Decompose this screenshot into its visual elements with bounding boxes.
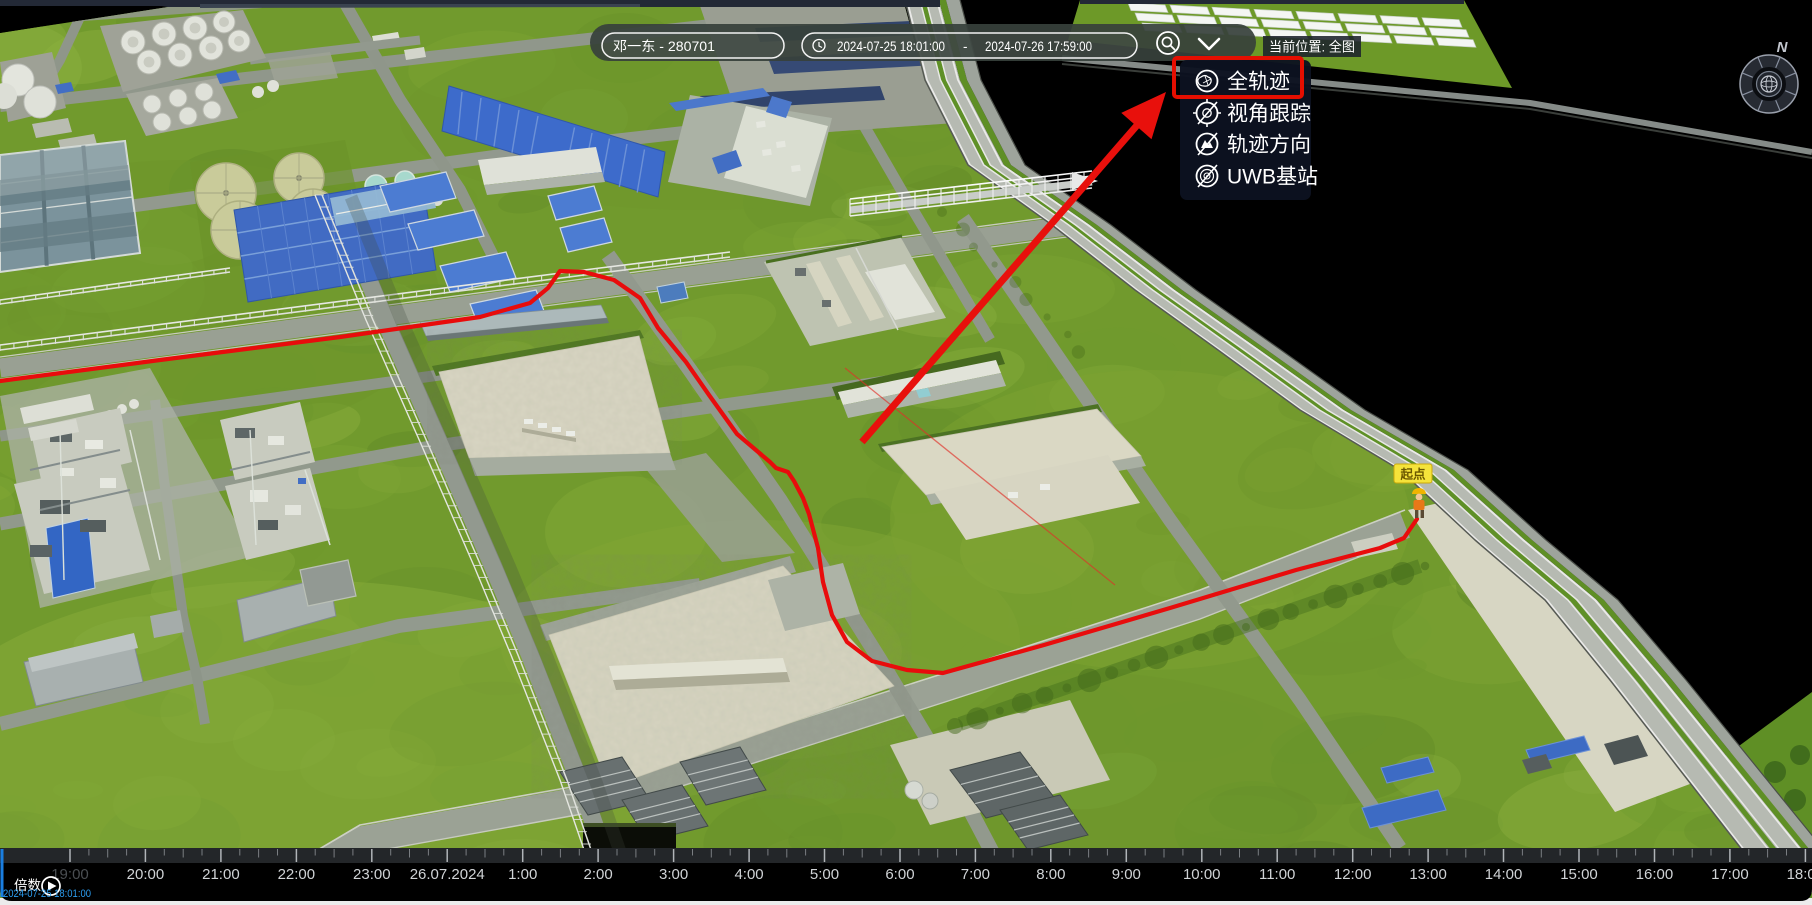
svg-text:2024-07-25 18:01:00: 2024-07-25 18:01:00 [837,39,945,54]
svg-text:11:00: 11:00 [1259,866,1295,883]
svg-text:2024-07-25 18:01:00: 2024-07-25 18:01:00 [3,888,91,900]
svg-text:17:00: 17:00 [1711,866,1749,883]
svg-text:7:00: 7:00 [961,866,990,883]
svg-text:23:00: 23:00 [353,866,391,883]
svg-text:19:00: 19:00 [51,866,89,883]
svg-text:14:00: 14:00 [1485,866,1523,883]
svg-text:3:00: 3:00 [659,866,688,883]
svg-text:-: - [963,39,968,54]
svg-text:8:00: 8:00 [1036,866,1065,883]
svg-text:6:00: 6:00 [885,866,914,883]
svg-text:16:00: 16:00 [1636,866,1674,883]
svg-text:全轨迹: 全轨迹 [1227,71,1290,94]
svg-text:起点: 起点 [1399,467,1426,482]
svg-text:N: N [1777,39,1789,56]
svg-text:轨迹方向: 轨迹方向 [1227,134,1311,157]
svg-text:当前位置: 全图: 当前位置: 全图 [1269,39,1355,55]
svg-text:1:00: 1:00 [508,866,537,883]
svg-text:22:00: 22:00 [278,866,316,883]
svg-text:2024-07-26 17:59:00: 2024-07-26 17:59:00 [985,39,1092,54]
svg-text:15:00: 15:00 [1560,866,1598,883]
svg-text:9:00: 9:00 [1112,866,1141,883]
svg-text:12:00: 12:00 [1334,866,1372,883]
svg-text:2:00: 2:00 [584,866,613,883]
svg-text:邓一东 - 280701: 邓一东 - 280701 [613,39,715,54]
svg-text:13:00: 13:00 [1409,866,1447,883]
svg-text:UWB基站: UWB基站 [1227,166,1318,189]
svg-text:10:00: 10:00 [1183,866,1221,883]
svg-text:26.07.2024: 26.07.2024 [410,866,485,883]
svg-text:18:00: 18:00 [1787,866,1812,883]
svg-text:5:00: 5:00 [810,866,839,883]
svg-text:20:00: 20:00 [127,866,165,883]
svg-text:4:00: 4:00 [734,866,763,883]
svg-text:21:00: 21:00 [202,866,240,883]
svg-text:视角跟踪: 视角跟踪 [1227,103,1311,126]
